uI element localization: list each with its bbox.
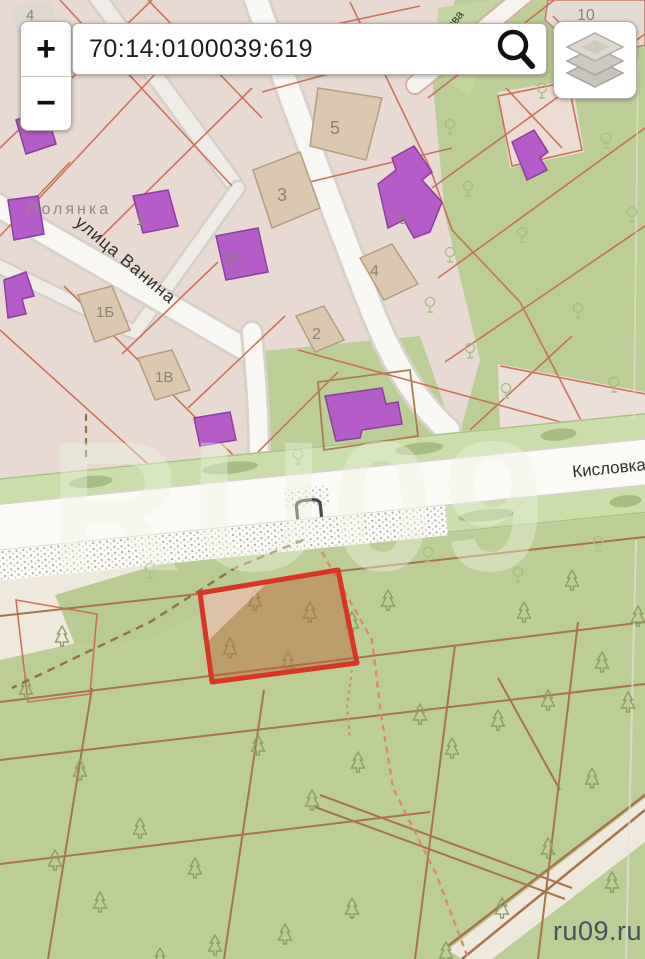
parcel-number-label: 4 (370, 263, 379, 280)
search-input[interactable] (87, 34, 494, 65)
zoom-controls: + − (20, 21, 72, 131)
zoom-in-button[interactable]: + (21, 22, 71, 77)
layers-button[interactable] (553, 21, 637, 99)
parcel-number-label: 1А (224, 250, 242, 267)
parcel-number-label: 1Б (96, 304, 114, 321)
search-bar (72, 23, 547, 75)
highlighted-parcel[interactable] (200, 570, 357, 682)
place-label-polyanka: Полянка (27, 201, 111, 218)
map-canvas[interactable]: Кисловка (0, 0, 645, 959)
parcel-number-label: 5 (330, 118, 340, 138)
parcel-number-label: 6 (398, 211, 406, 228)
zoom-out-button[interactable]: − (21, 77, 71, 131)
search-icon[interactable] (494, 27, 538, 71)
layers-icon (564, 31, 626, 89)
parcel-number-label: 1 (136, 212, 144, 229)
parcel-number-label: 1В (155, 369, 173, 386)
map-app: Кисловка (0, 0, 645, 959)
parcel-number-label: 3 (277, 185, 287, 205)
corner-watermark: ru09.ru (553, 916, 642, 947)
parcel-number-label: 2 (312, 326, 321, 343)
